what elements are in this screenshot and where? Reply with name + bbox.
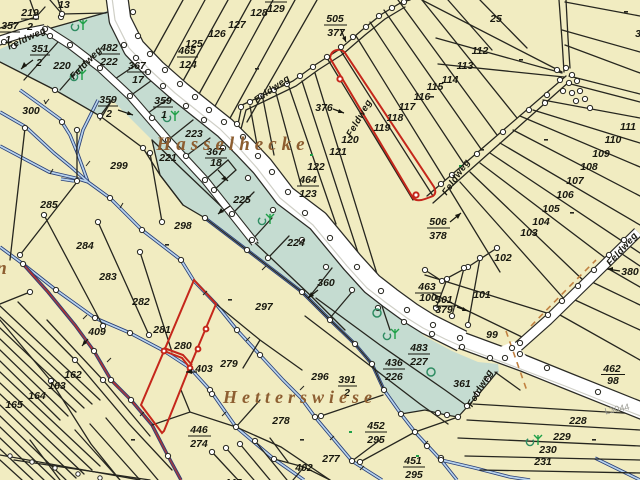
svg-text:2: 2 xyxy=(105,108,112,120)
svg-text:351: 351 xyxy=(31,43,49,55)
svg-text:380: 380 xyxy=(621,266,639,278)
svg-text:162: 162 xyxy=(64,369,82,381)
svg-text:295: 295 xyxy=(404,469,423,480)
svg-text:505: 505 xyxy=(326,13,344,25)
svg-text:299: 299 xyxy=(109,160,128,172)
svg-text:Hetterswiese: Hetterswiese xyxy=(222,387,377,407)
svg-text:227: 227 xyxy=(409,356,429,368)
svg-text:403: 403 xyxy=(194,363,213,375)
svg-text:124: 124 xyxy=(179,59,197,71)
svg-text:106: 106 xyxy=(556,189,574,201)
svg-text:297: 297 xyxy=(254,301,274,313)
svg-text:1: 1 xyxy=(161,109,167,121)
svg-text:105: 105 xyxy=(542,203,560,215)
svg-text:361: 361 xyxy=(453,378,471,390)
svg-text:108: 108 xyxy=(580,161,598,173)
svg-text:102: 102 xyxy=(494,252,512,264)
svg-text:99: 99 xyxy=(486,329,498,341)
svg-text:391: 391 xyxy=(338,374,356,386)
svg-text:228: 228 xyxy=(568,415,587,427)
svg-text:295: 295 xyxy=(366,434,385,446)
svg-text:127: 127 xyxy=(228,19,247,31)
svg-text:298: 298 xyxy=(173,220,192,232)
svg-text:113: 113 xyxy=(457,60,474,72)
svg-text:464: 464 xyxy=(298,174,317,186)
svg-text:17: 17 xyxy=(132,74,145,86)
svg-text:367: 367 xyxy=(128,60,147,72)
svg-text:128: 128 xyxy=(250,7,268,19)
svg-text:126: 126 xyxy=(208,28,226,40)
svg-text:284: 284 xyxy=(75,240,94,252)
svg-text:165: 165 xyxy=(5,399,23,411)
svg-text:122: 122 xyxy=(307,161,325,173)
svg-text:376: 376 xyxy=(315,102,333,114)
svg-text:378: 378 xyxy=(429,230,447,242)
svg-text:224: 224 xyxy=(286,237,305,249)
svg-text:506: 506 xyxy=(429,216,447,228)
svg-text:2: 2 xyxy=(35,57,42,69)
svg-text:230: 230 xyxy=(538,444,557,456)
svg-text:279: 279 xyxy=(219,358,238,370)
svg-text:377: 377 xyxy=(327,27,346,39)
svg-text:359: 359 xyxy=(154,95,172,107)
svg-text:123: 123 xyxy=(299,188,317,200)
svg-text:107: 107 xyxy=(566,175,585,187)
svg-text:278: 278 xyxy=(271,415,290,427)
svg-text:359: 359 xyxy=(99,94,117,106)
svg-text:281: 281 xyxy=(152,324,171,336)
svg-text:462: 462 xyxy=(602,363,621,375)
svg-text:277: 277 xyxy=(321,453,341,465)
svg-text:103: 103 xyxy=(520,227,538,239)
svg-text:101: 101 xyxy=(473,289,491,301)
svg-text:409: 409 xyxy=(87,326,106,338)
svg-text:231: 231 xyxy=(533,456,552,468)
svg-text:18: 18 xyxy=(210,157,222,169)
svg-text:283: 283 xyxy=(98,271,117,283)
svg-text:3: 3 xyxy=(635,28,640,40)
svg-text:436: 436 xyxy=(384,357,403,369)
svg-text:285: 285 xyxy=(39,199,58,211)
svg-text:357: 357 xyxy=(1,20,20,32)
svg-text:n: n xyxy=(0,258,12,279)
svg-text:116: 116 xyxy=(414,91,431,103)
svg-text:112: 112 xyxy=(472,45,489,57)
svg-text:111: 111 xyxy=(620,121,636,133)
svg-text:114: 114 xyxy=(442,74,459,86)
svg-text:379: 379 xyxy=(435,304,453,316)
svg-text:226: 226 xyxy=(384,371,403,383)
svg-text:164: 164 xyxy=(28,390,46,402)
svg-text:222: 222 xyxy=(99,56,118,68)
svg-text:452: 452 xyxy=(366,420,385,432)
svg-text:109: 109 xyxy=(592,148,610,160)
svg-text:104: 104 xyxy=(532,216,550,228)
svg-text:121: 121 xyxy=(329,146,347,158)
svg-text:483: 483 xyxy=(409,342,428,354)
svg-text:229: 229 xyxy=(552,431,571,443)
svg-text:360: 360 xyxy=(317,277,335,289)
svg-text:300: 300 xyxy=(22,105,40,117)
svg-text:465: 465 xyxy=(177,45,196,57)
svg-text:225: 225 xyxy=(232,194,251,206)
svg-text:296: 296 xyxy=(310,371,329,383)
svg-text:110: 110 xyxy=(605,134,622,146)
svg-text:451: 451 xyxy=(403,455,422,467)
svg-text:163: 163 xyxy=(48,380,66,392)
svg-text:13: 13 xyxy=(58,0,70,11)
svg-text:446: 446 xyxy=(189,424,208,436)
svg-text:274: 274 xyxy=(189,438,208,450)
svg-text:129: 129 xyxy=(267,3,285,15)
svg-text:119: 119 xyxy=(374,122,391,134)
svg-text:280: 280 xyxy=(173,340,192,352)
svg-text:402: 402 xyxy=(294,462,313,474)
svg-text:98: 98 xyxy=(607,375,619,387)
svg-text:282: 282 xyxy=(131,296,150,308)
svg-text:Hasselhecke: Hasselhecke xyxy=(155,134,309,155)
svg-text:25: 25 xyxy=(489,13,502,25)
svg-text:220: 220 xyxy=(52,60,71,72)
svg-text:219: 219 xyxy=(20,7,39,19)
